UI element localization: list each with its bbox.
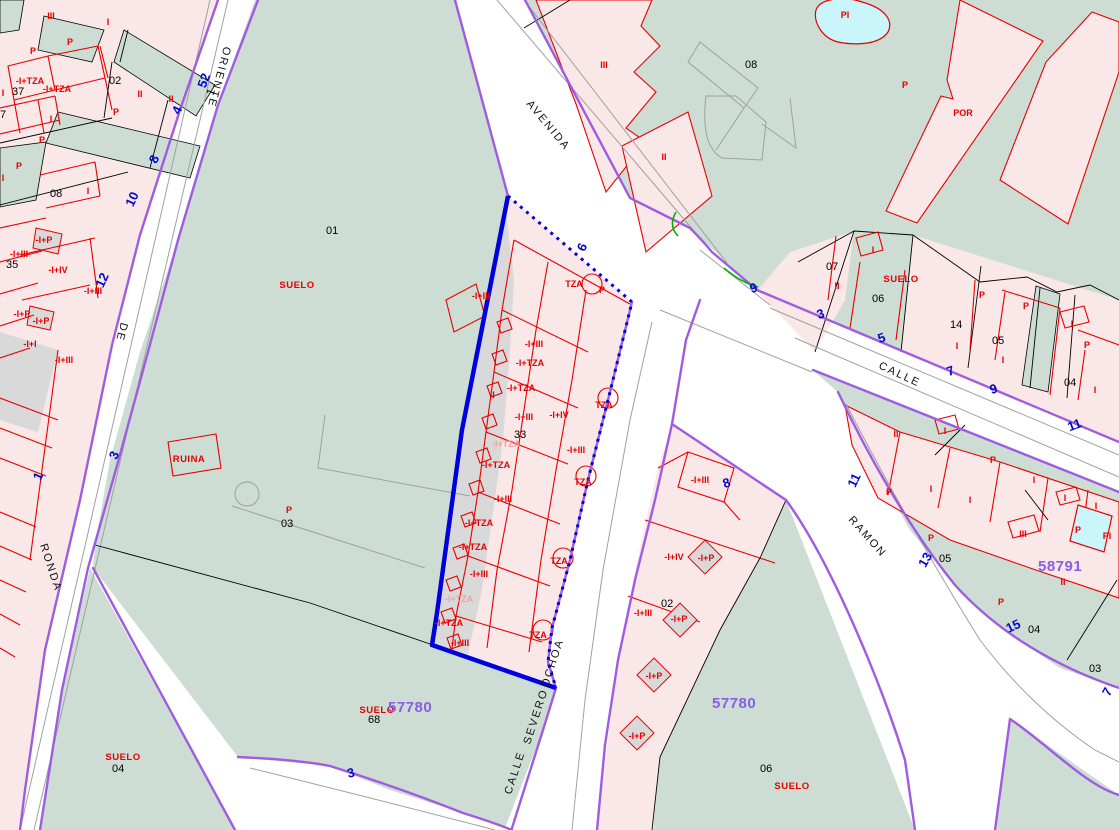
map-svg[interactable]: ORIENTEDERONDAAVENIDACALLERAMONCALLESEVE… bbox=[0, 0, 1119, 830]
cadastral-map-canvas[interactable]: ORIENTEDERONDAAVENIDACALLERAMONCALLESEVE… bbox=[0, 0, 1119, 830]
